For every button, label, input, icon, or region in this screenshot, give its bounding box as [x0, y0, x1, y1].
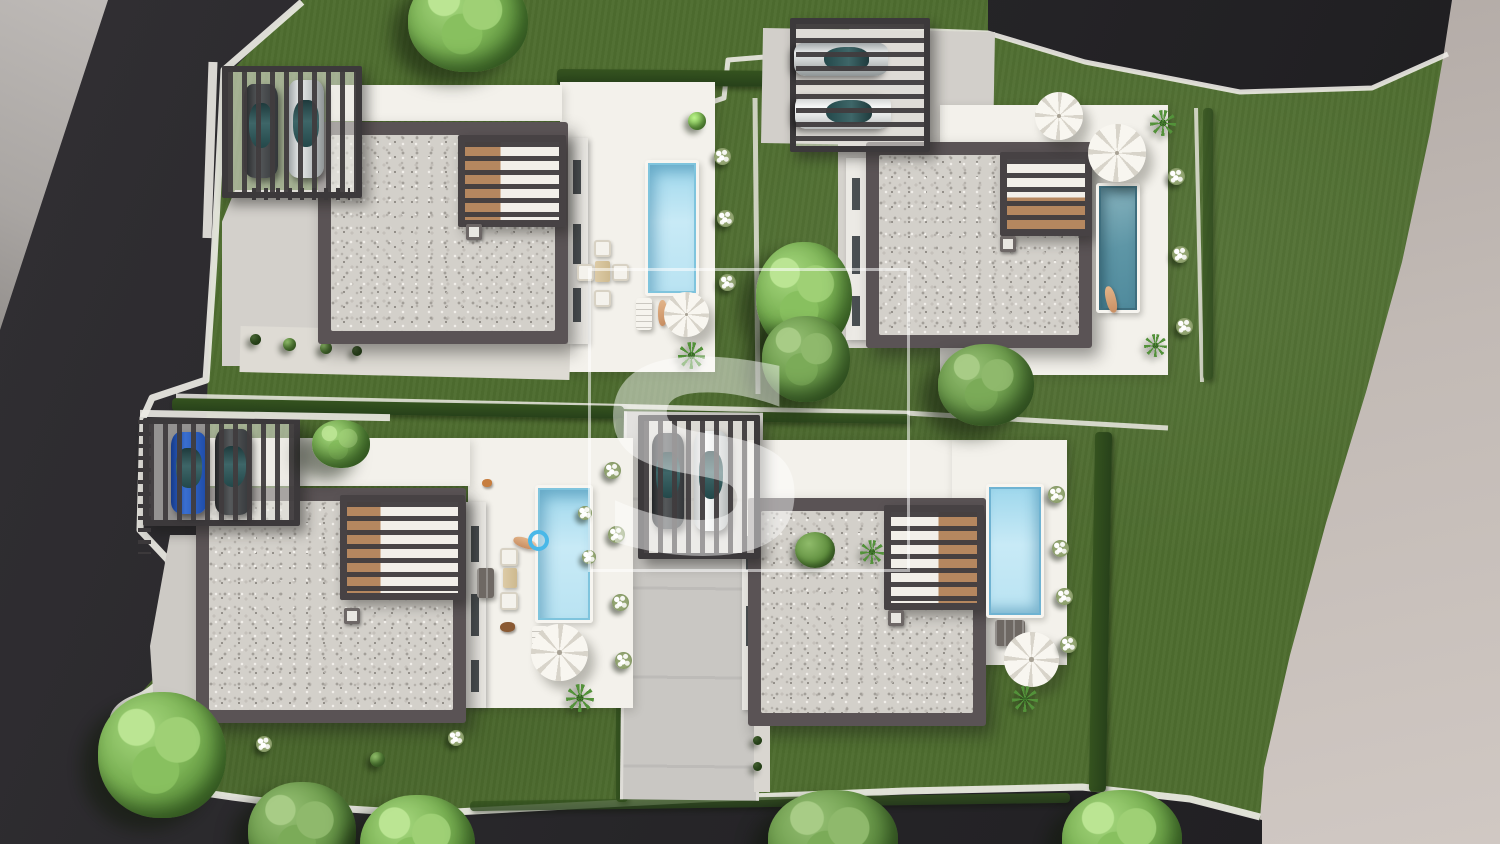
flower-bush: [1168, 168, 1185, 185]
palm-plant: [1012, 686, 1038, 712]
flower-bush: [1060, 636, 1077, 653]
villa2-pergola-slats: [1007, 159, 1085, 229]
shrub: [352, 346, 362, 356]
villa4-roof-vent: [888, 610, 904, 626]
flower-bush: [448, 730, 464, 746]
parasol: [1088, 124, 1146, 182]
tree-small: [312, 420, 370, 468]
villa1-fence: [252, 188, 350, 200]
aerial-site-render: S: [0, 0, 1500, 844]
flower-bush: [714, 148, 731, 165]
villa3-pergola-slats: [347, 502, 458, 593]
villa2-carport: [790, 18, 930, 152]
villa2-carport-slats: [796, 24, 924, 146]
flower-bush: [717, 210, 734, 227]
palm-plant: [566, 684, 594, 712]
villa1-pergola: [458, 135, 566, 227]
villa4-pool: [986, 484, 1044, 618]
parasol: [531, 624, 588, 681]
shrub: [753, 762, 762, 771]
cat: [482, 479, 492, 487]
parasol: [1035, 92, 1083, 140]
watermark-logo-letter: S: [574, 365, 834, 559]
villa3-carport: [143, 418, 300, 526]
side-table: [503, 568, 517, 588]
flower-bush: [1052, 540, 1069, 557]
shrub: [753, 736, 762, 745]
tree: [98, 692, 226, 818]
flower-bush: [1176, 318, 1193, 335]
villa1-path-top: [330, 85, 562, 121]
villa1-east-facade: [568, 138, 588, 344]
villa3-roof-vent: [344, 608, 360, 624]
hedge-right-villa2: [1203, 108, 1213, 380]
flower-bush: [1172, 246, 1189, 263]
villa3-pergola: [340, 495, 465, 600]
flower-bush: [1048, 486, 1065, 503]
villa1-pergola-slats: [465, 142, 559, 220]
pool-float: [528, 530, 549, 551]
villa3-east-facade: [466, 502, 486, 708]
flower-bush: [256, 736, 272, 752]
shrub: [283, 338, 296, 351]
villa1-carport-slats: [228, 72, 356, 192]
villa1-carport: [222, 66, 362, 198]
villa3-fence: [138, 420, 151, 554]
chair: [500, 548, 518, 566]
lime-bush: [688, 112, 706, 130]
villa1-roof-vent: [466, 224, 482, 240]
flower-bush: [1056, 588, 1073, 605]
flower-bush: [615, 652, 632, 669]
villa2-pergola: [1000, 152, 1092, 236]
tree: [938, 344, 1034, 426]
parasol: [1004, 632, 1059, 687]
day-bed: [477, 568, 494, 598]
villa2-pool: [1096, 183, 1140, 313]
villa2-roof-vent: [1000, 236, 1016, 252]
villa3-carport-slats: [149, 424, 294, 520]
shrub: [370, 752, 385, 767]
palm-plant: [1144, 334, 1167, 357]
chair: [500, 592, 518, 610]
chair: [594, 240, 611, 257]
palm-plant: [1150, 110, 1176, 136]
dog: [500, 622, 515, 632]
shrub: [250, 334, 261, 345]
